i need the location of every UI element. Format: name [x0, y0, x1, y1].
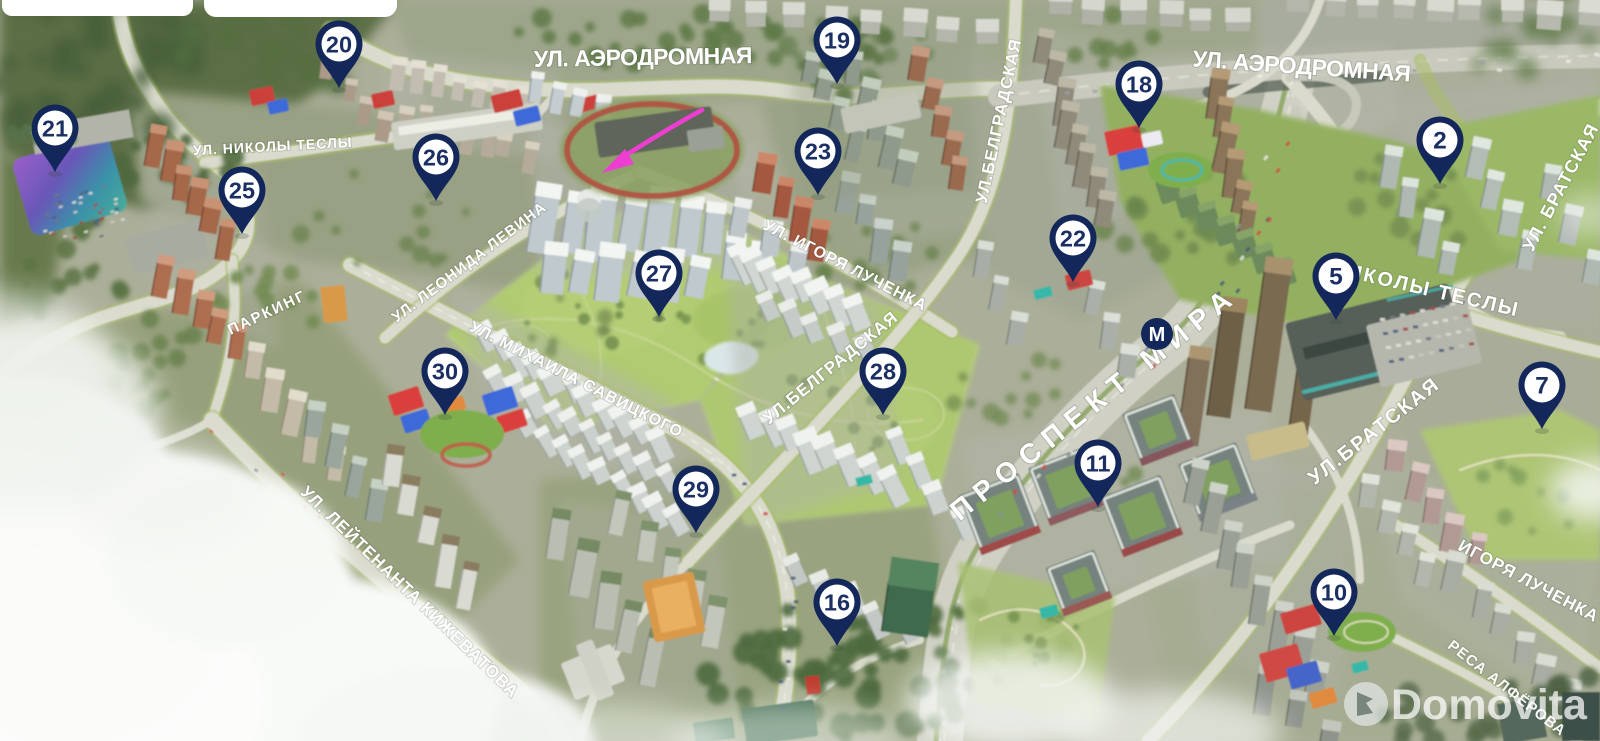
- svg-text:21: 21: [42, 116, 68, 142]
- svg-text:29: 29: [683, 477, 709, 503]
- svg-text:Domovita: Domovita: [1391, 681, 1588, 729]
- svg-text:5: 5: [1329, 264, 1343, 291]
- svg-text:10: 10: [1321, 580, 1347, 606]
- svg-text:16: 16: [824, 590, 850, 616]
- svg-text:27: 27: [646, 261, 672, 287]
- svg-text:УЛ. АЭРОДРОМНАЯ: УЛ. АЭРОДРОМНАЯ: [534, 42, 753, 72]
- svg-text:22: 22: [1060, 226, 1086, 252]
- svg-text:19: 19: [824, 28, 850, 54]
- svg-text:7: 7: [1535, 373, 1549, 400]
- svg-text:18: 18: [1126, 72, 1152, 98]
- svg-text:2: 2: [1433, 128, 1447, 155]
- svg-text:26: 26: [423, 145, 449, 171]
- svg-text:М: М: [1149, 324, 1166, 346]
- svg-text:28: 28: [870, 359, 896, 385]
- svg-text:11: 11: [1086, 451, 1111, 477]
- svg-text:20: 20: [326, 32, 352, 58]
- svg-text:30: 30: [432, 359, 458, 385]
- svg-text:23: 23: [805, 139, 831, 165]
- svg-text:25: 25: [229, 178, 255, 204]
